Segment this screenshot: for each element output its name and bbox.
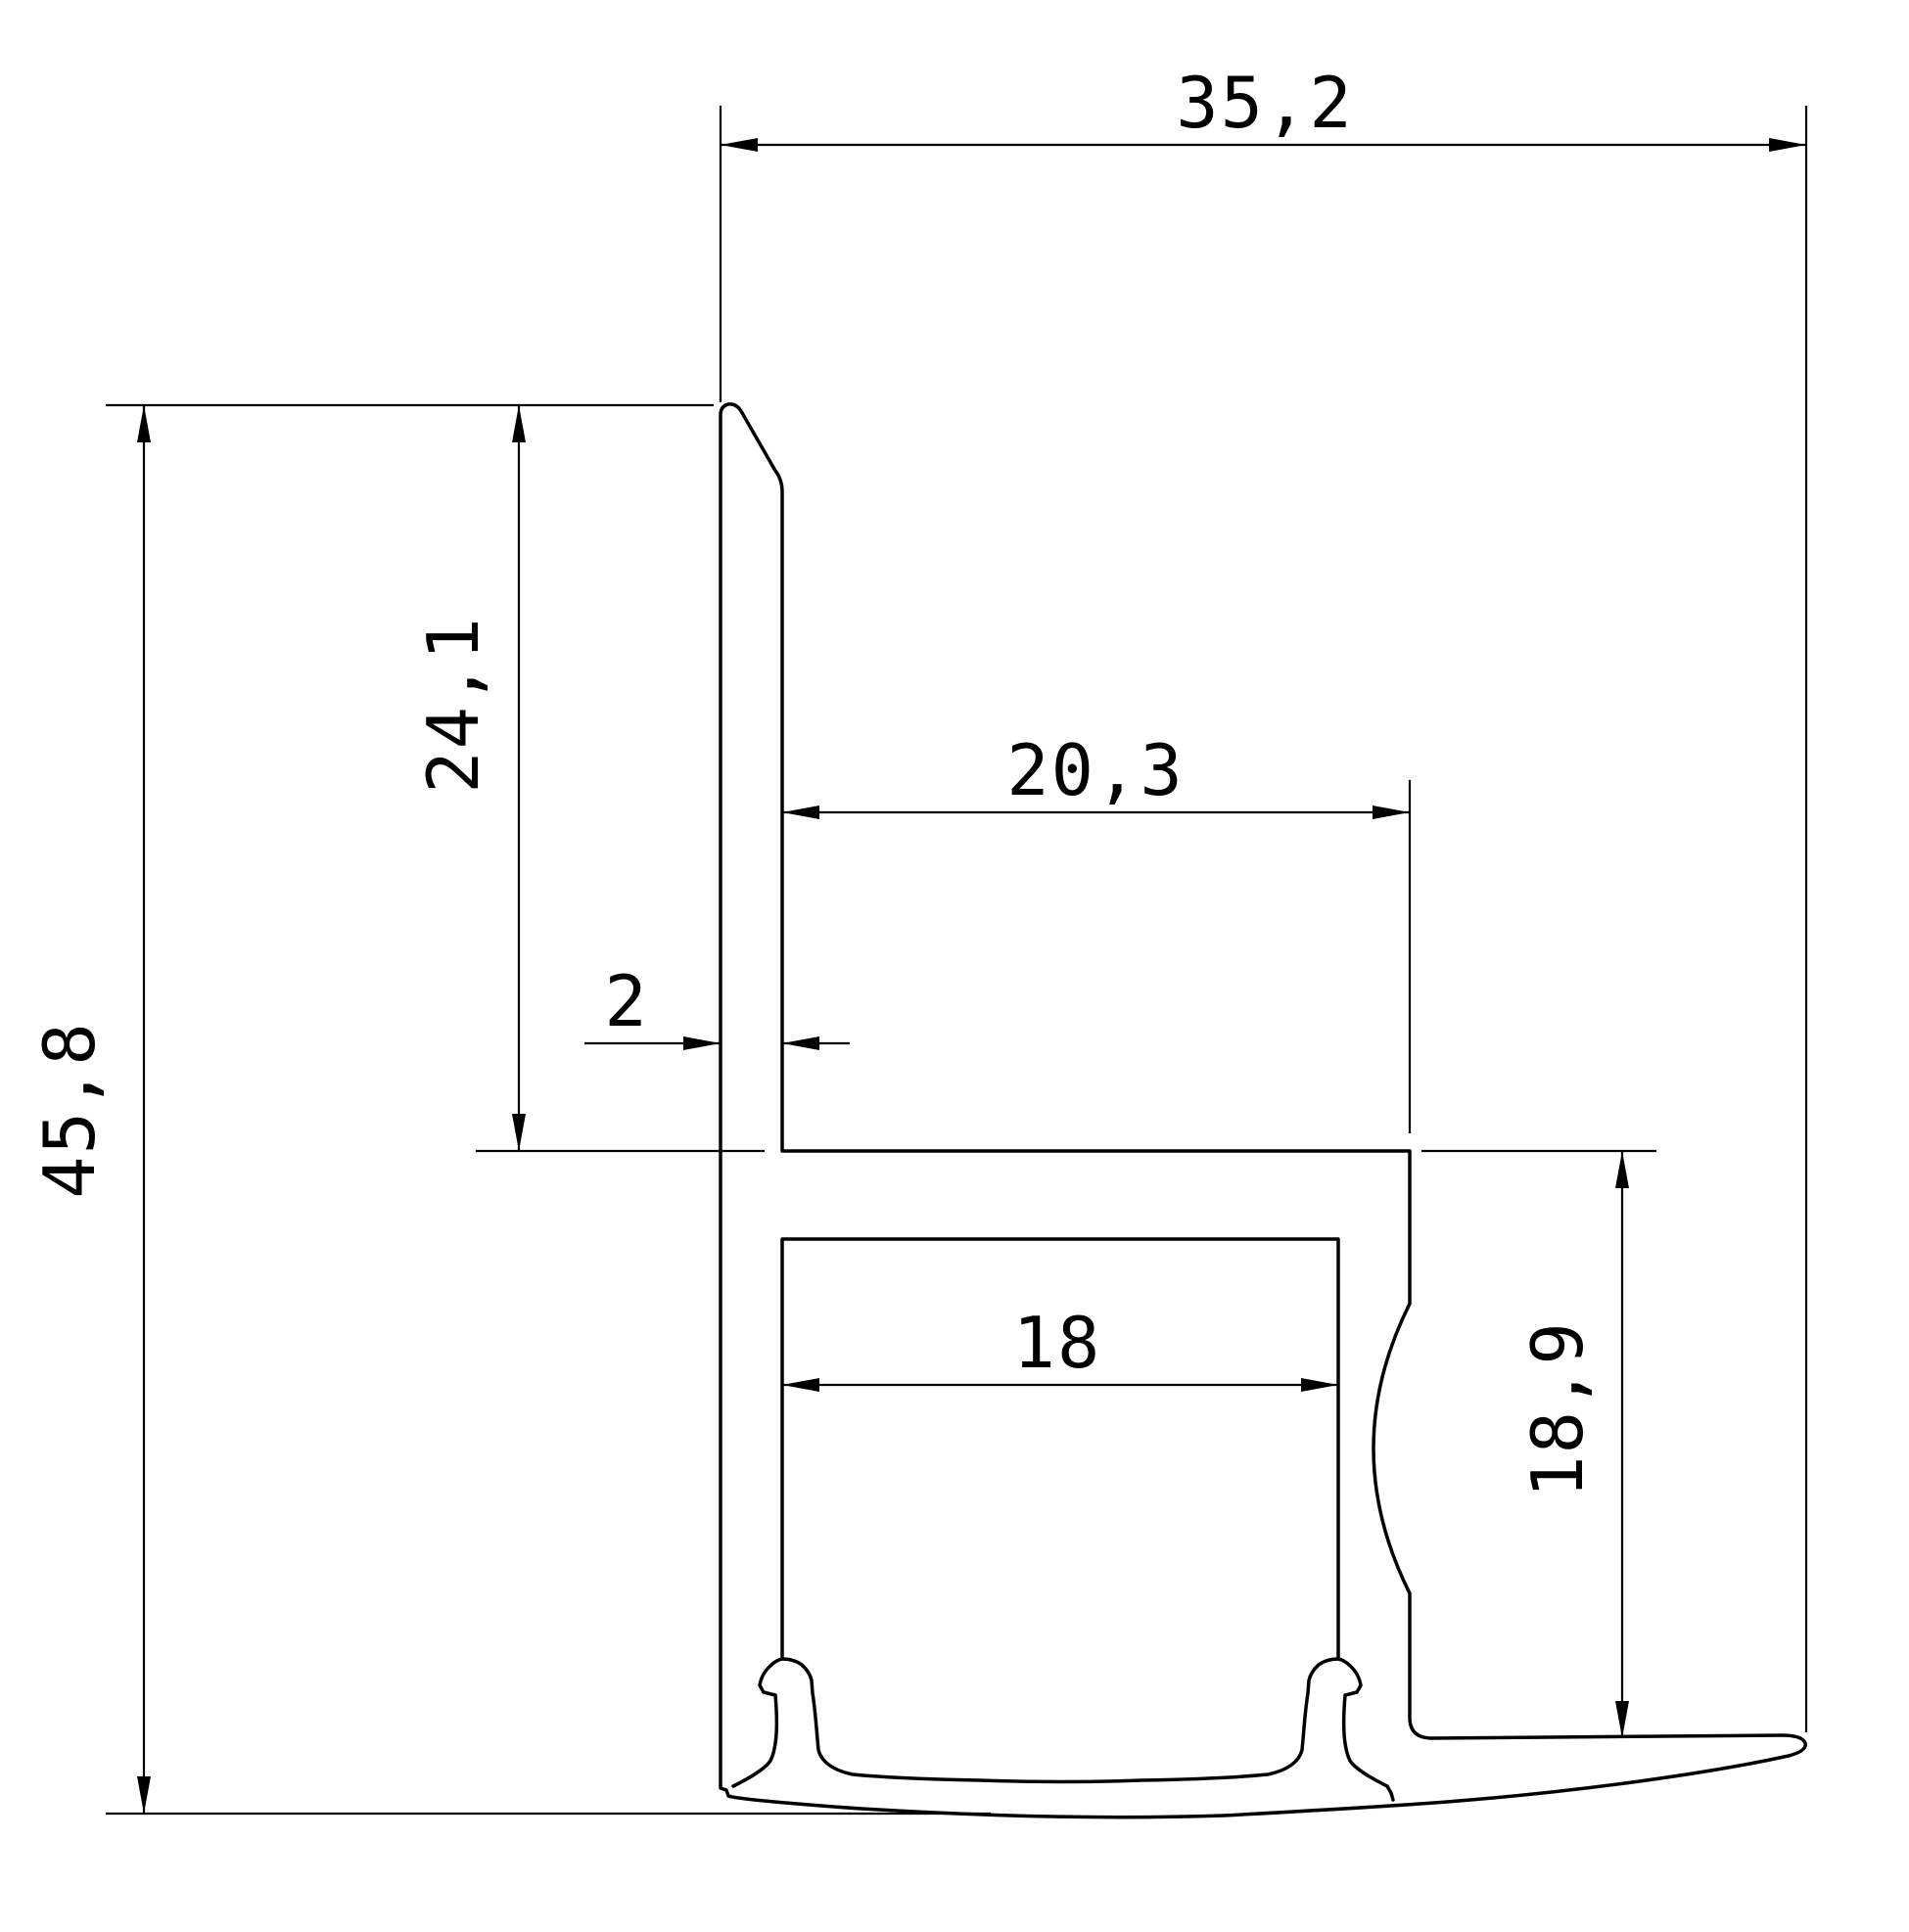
arrow-right-icon — [1301, 1378, 1338, 1392]
dimension-label-upper-wall-height: 24,1 — [412, 616, 494, 793]
profile-outline — [721, 404, 1805, 1817]
dimension-label-wall-thickness: 2 — [604, 960, 648, 1042]
dimension-total-height: 45,8 — [28, 405, 151, 1814]
dimension-led-channel-width: 18 — [782, 1302, 1338, 1392]
dimension-label-total-height: 45,8 — [28, 1021, 111, 1198]
arrow-down-icon — [512, 1114, 526, 1151]
dimension-upper-channel-width: 20,3 — [782, 729, 1410, 819]
arrow-up-icon — [137, 405, 151, 442]
extension-lines — [106, 106, 1806, 1814]
dimension-label-led-channel-width: 18 — [1013, 1302, 1102, 1384]
arrow-up-icon — [1615, 1151, 1629, 1188]
dimension-total-width: 35,2 — [721, 62, 1806, 152]
arrow-right-icon — [1373, 805, 1410, 819]
technical-drawing-page: 35,2 45,8 24,1 20,3 2 18 18,9 — [0, 0, 1909, 1932]
dimension-label-total-width: 35,2 — [1176, 62, 1353, 144]
dimension-label-lower-right-height: 18,9 — [1516, 1320, 1599, 1497]
arrow-left-icon — [782, 805, 819, 819]
dimension-wall-thickness: 2 — [584, 960, 850, 1050]
arrow-up-icon — [512, 405, 526, 442]
arrow-left-icon — [782, 1378, 819, 1392]
profile-feet-and-floor — [782, 1659, 1338, 1782]
dimension-upper-wall-height: 24,1 — [412, 405, 526, 1151]
arrow-down-icon — [1615, 1701, 1629, 1738]
arrow-right-icon — [1769, 138, 1806, 152]
arrow-down-icon — [137, 1776, 151, 1814]
dimension-label-upper-channel-width: 20,3 — [1006, 729, 1184, 811]
arrow-left-icon — [721, 138, 758, 152]
arrow-left-icon — [782, 1036, 819, 1050]
dimension-lower-right-height: 18,9 — [1516, 1151, 1629, 1738]
profile-technical-drawing: 35,2 45,8 24,1 20,3 2 18 18,9 — [0, 0, 1909, 1932]
arrow-right-icon — [683, 1036, 721, 1050]
profile-outer-contour — [721, 404, 1805, 1817]
